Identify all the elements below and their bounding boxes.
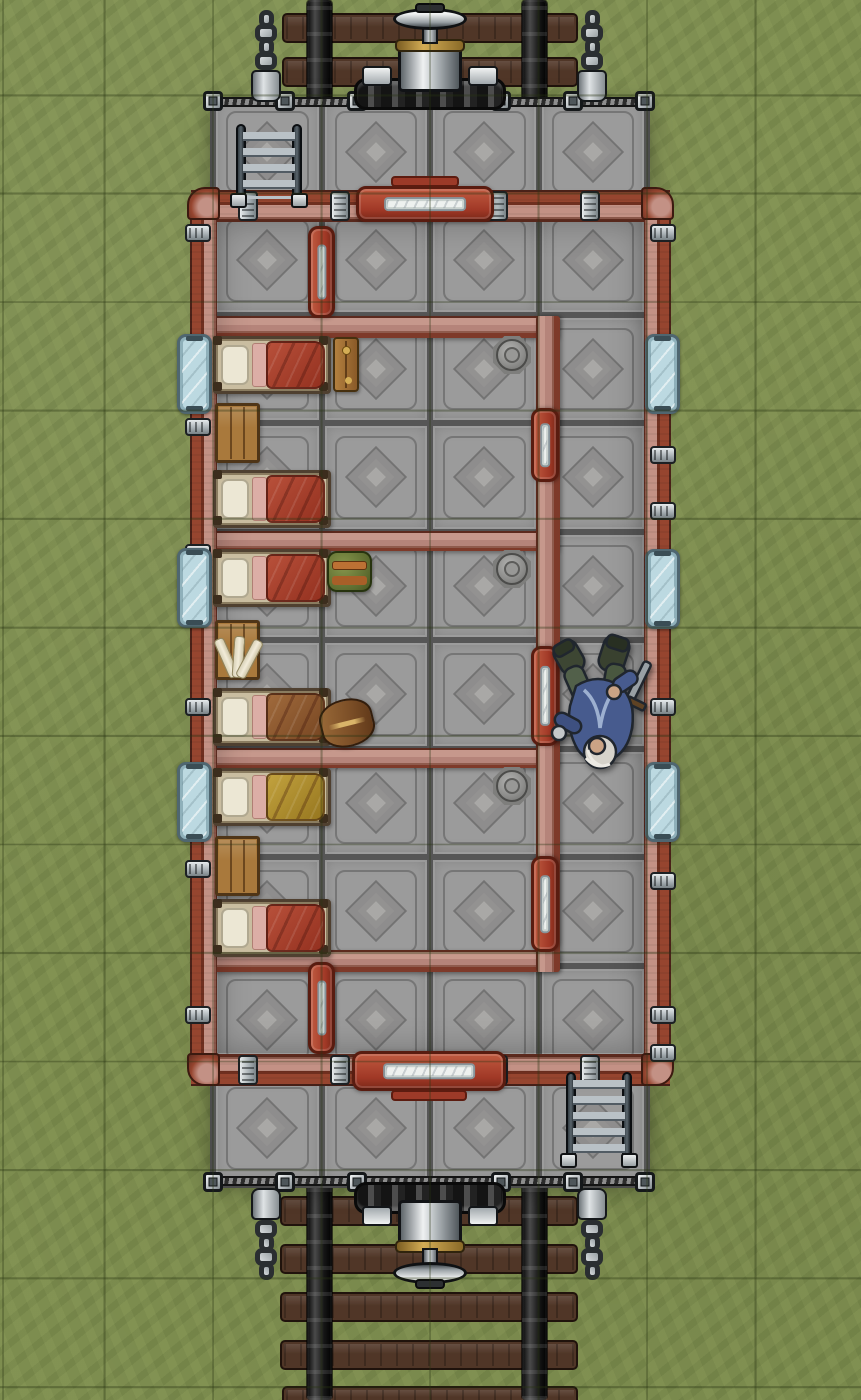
pipe-clamp (185, 1006, 211, 1024)
coupler-lug (468, 66, 498, 86)
door-step (391, 1090, 468, 1101)
pipe-clamp (650, 224, 676, 242)
chain-link-icon (581, 1220, 603, 1238)
bunk-bed-4[interactable] (213, 688, 331, 746)
coupler-knob (415, 3, 445, 13)
boarding-ladder-south[interactable] (563, 1072, 635, 1164)
pipe-clamp (185, 860, 211, 878)
car-coupler (352, 1182, 508, 1288)
battle-map-train-sleeper-car (0, 0, 861, 1400)
wall-corner (187, 187, 220, 220)
compartment-door-3[interactable] (531, 856, 559, 952)
wall-corner (641, 187, 674, 220)
chain-post (251, 1188, 281, 1220)
bed-sheet (252, 775, 267, 819)
ladder-rungs (573, 1077, 625, 1159)
track-rail (307, 1183, 332, 1400)
manhole-cover (493, 336, 531, 374)
window-left-1 (177, 334, 212, 414)
pipe-clamp (650, 698, 676, 716)
travel-satchel[interactable] (327, 551, 372, 592)
brake-chain (574, 1180, 610, 1276)
manhole-cover (493, 550, 531, 588)
bunk-bed-5[interactable] (213, 768, 331, 826)
chain-link-icon (581, 52, 603, 70)
blanket-red (266, 475, 325, 523)
bed-sheet (252, 477, 267, 521)
window-right-1 (645, 334, 680, 414)
pipe-clamp (650, 1006, 676, 1024)
ladder-rungs (243, 129, 295, 199)
bunk-bed-3[interactable] (213, 549, 331, 607)
ladder-foot (560, 1153, 577, 1168)
pillow (221, 558, 249, 598)
deck-plate (213, 1074, 322, 1183)
bed-sheet (252, 695, 267, 739)
side-table-1[interactable] (215, 403, 260, 463)
brake-chain (248, 1180, 284, 1276)
bunk-bed-1[interactable] (213, 336, 331, 394)
pillow (221, 479, 249, 519)
blanket-brown (266, 693, 325, 741)
entry-door-south[interactable] (352, 1051, 506, 1091)
pipe-clamp (650, 1044, 676, 1062)
car-coupler (352, 4, 508, 110)
pipe-clamp (330, 1055, 350, 1085)
wooden-bench[interactable] (333, 337, 359, 392)
pipe-clamp (185, 418, 211, 436)
wall-corner (187, 1053, 220, 1086)
bed-sheet (252, 343, 267, 387)
window-right-2 (645, 549, 680, 629)
track-rail (522, 1183, 547, 1400)
bunk-bed-6[interactable] (213, 899, 331, 957)
pipe-clamp (185, 698, 211, 716)
pillow (221, 777, 249, 817)
entry-door-north[interactable] (356, 186, 494, 222)
coupler-lug (362, 1206, 392, 1226)
railing-post (203, 91, 223, 111)
door-glass-pane (384, 197, 466, 211)
ladder-foot (230, 193, 247, 208)
compartment-door-1[interactable] (531, 408, 559, 482)
manhole-cover (493, 767, 531, 805)
chain-post (577, 70, 607, 102)
pillow (221, 697, 249, 737)
pipe-clamp (650, 872, 676, 890)
ladder-foot (291, 193, 308, 208)
vestibule-door-south[interactable] (308, 962, 335, 1054)
coupler-knob (415, 1279, 445, 1289)
chain-post (251, 70, 281, 102)
token-fallen-dwarf[interactable] (548, 630, 652, 782)
door-glass-pane (540, 423, 550, 467)
blanket-yellow (266, 773, 325, 821)
door-glass-pane (317, 980, 326, 1035)
chain-link-icon (255, 1220, 277, 1238)
pipe-clamp (580, 191, 600, 221)
bunk-bed-2[interactable] (213, 470, 331, 528)
pipe-clamp (650, 446, 676, 464)
chain-link-icon (255, 52, 277, 70)
pipe-clamp (238, 1055, 258, 1085)
door-step (391, 176, 460, 187)
pillow (221, 345, 249, 385)
scroll-bundle[interactable] (220, 634, 260, 684)
pipe-clamp (330, 191, 350, 221)
window-left-3 (177, 762, 212, 842)
window-left-2 (177, 548, 212, 628)
bed-sheet (252, 556, 267, 600)
vestibule-door-north[interactable] (308, 226, 335, 318)
boarding-ladder-north[interactable] (233, 124, 305, 204)
door-glass-pane (317, 244, 326, 299)
railing-post (635, 1172, 655, 1192)
bed-sheet (252, 906, 267, 950)
pipe-clamp (185, 224, 211, 242)
chain-post (577, 1188, 607, 1220)
blanket-red (266, 341, 325, 389)
blanket-red (266, 554, 325, 602)
coupler-lug (362, 66, 392, 86)
brake-chain (574, 14, 610, 110)
pillow (221, 908, 249, 948)
ladder-foot (621, 1153, 638, 1168)
railing-post (635, 91, 655, 111)
door-glass-pane (540, 875, 550, 933)
door-glass-pane (383, 1063, 475, 1079)
pipe-clamp (650, 502, 676, 520)
side-table-3[interactable] (215, 836, 260, 896)
brake-chain (248, 14, 284, 110)
railing-post (203, 1172, 223, 1192)
blanket-red (266, 904, 325, 952)
coupler-lug (468, 1206, 498, 1226)
